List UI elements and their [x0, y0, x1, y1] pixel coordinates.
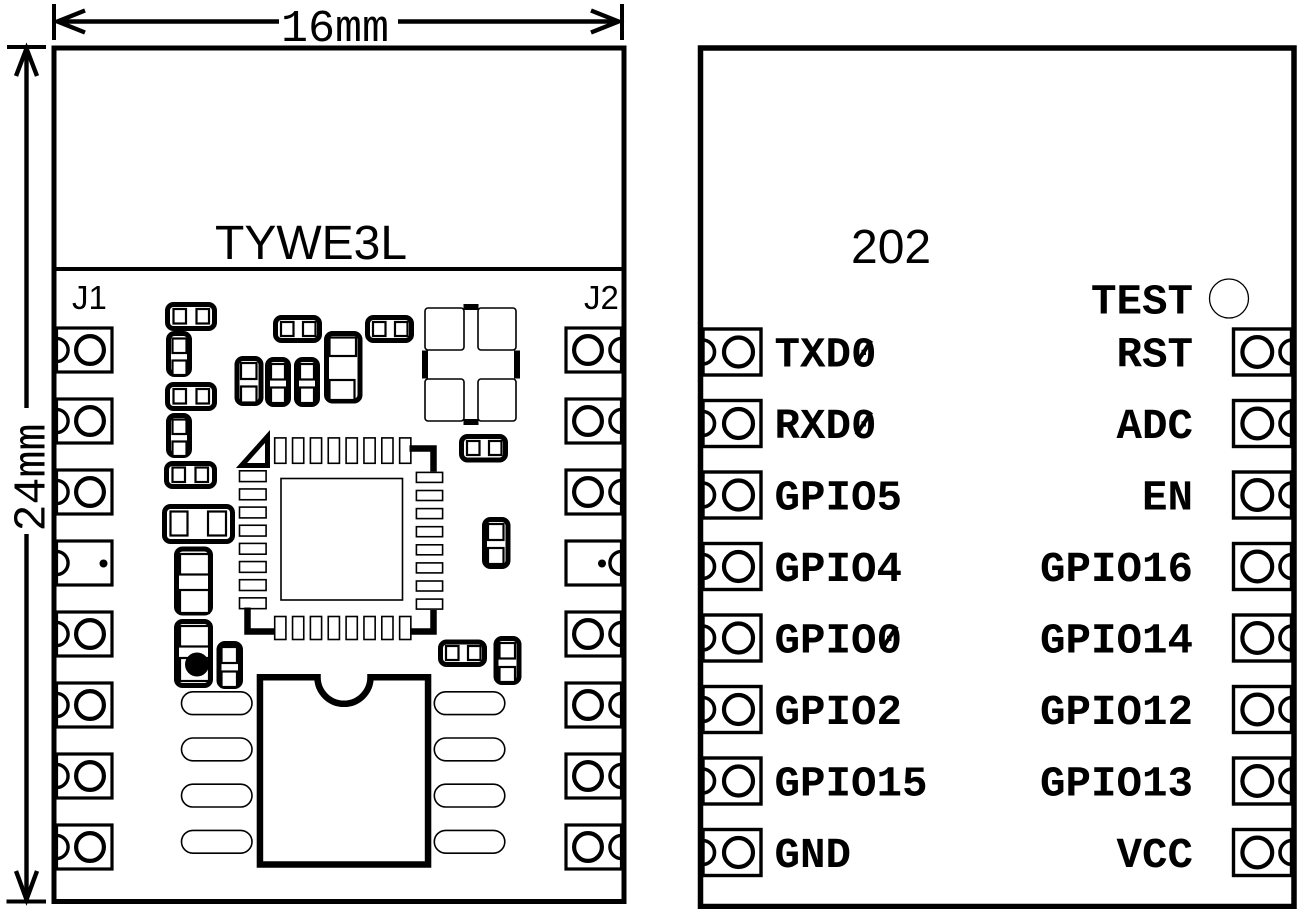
svg-text:GPIO15: GPIO15 [775, 761, 928, 809]
svg-text:GPIO5: GPIO5 [775, 475, 903, 523]
svg-text:GPIO4: GPIO4 [775, 546, 903, 594]
svg-text:202: 202 [851, 221, 931, 274]
svg-text:24mm: 24mm [8, 423, 59, 531]
svg-text:J2: J2 [584, 279, 619, 316]
svg-text:VCC: VCC [1116, 832, 1193, 880]
svg-text:GPIO12: GPIO12 [1040, 689, 1193, 737]
svg-text:EN: EN [1142, 475, 1193, 523]
svg-text:GPIO2: GPIO2 [775, 689, 903, 737]
svg-text:GPIO0: GPIO0 [775, 618, 903, 666]
svg-text:GPIO16: GPIO16 [1040, 546, 1193, 594]
svg-text:GPIO13: GPIO13 [1040, 761, 1193, 809]
svg-text:ADC: ADC [1116, 403, 1193, 451]
svg-text:RST: RST [1116, 332, 1193, 380]
svg-text:GPIO14: GPIO14 [1040, 618, 1193, 666]
svg-text:TYWE3L: TYWE3L [215, 217, 407, 270]
svg-text:GND: GND [775, 832, 852, 880]
svg-text:TEST: TEST [1091, 279, 1193, 327]
svg-text:J1: J1 [72, 279, 107, 316]
